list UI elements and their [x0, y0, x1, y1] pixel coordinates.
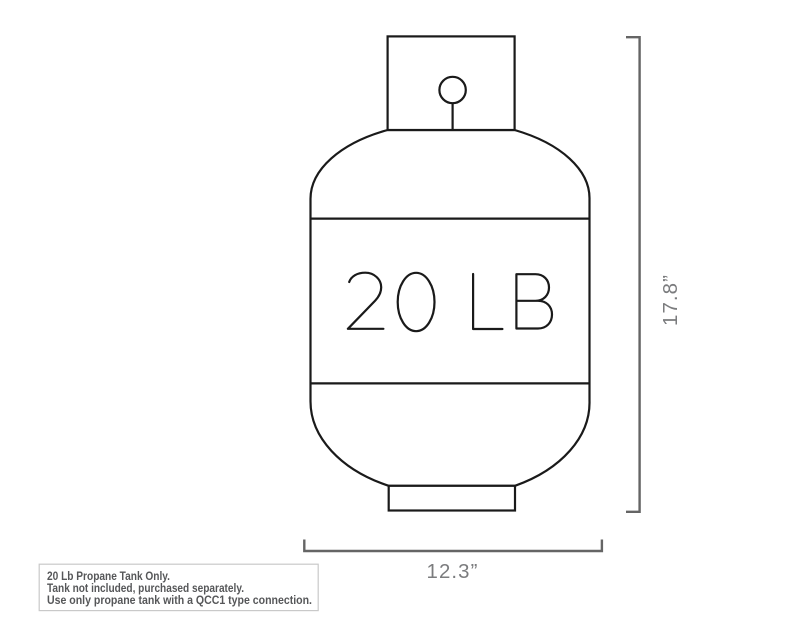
- svg-text:Use only propane tank with a Q: Use only propane tank with a QCC1 type c…: [47, 594, 312, 607]
- svg-text:12.3”: 12.3”: [427, 561, 479, 583]
- svg-text:20 Lb Propane Tank Only.: 20 Lb Propane Tank Only.: [47, 570, 170, 583]
- svg-text:17.8”: 17.8”: [660, 274, 682, 326]
